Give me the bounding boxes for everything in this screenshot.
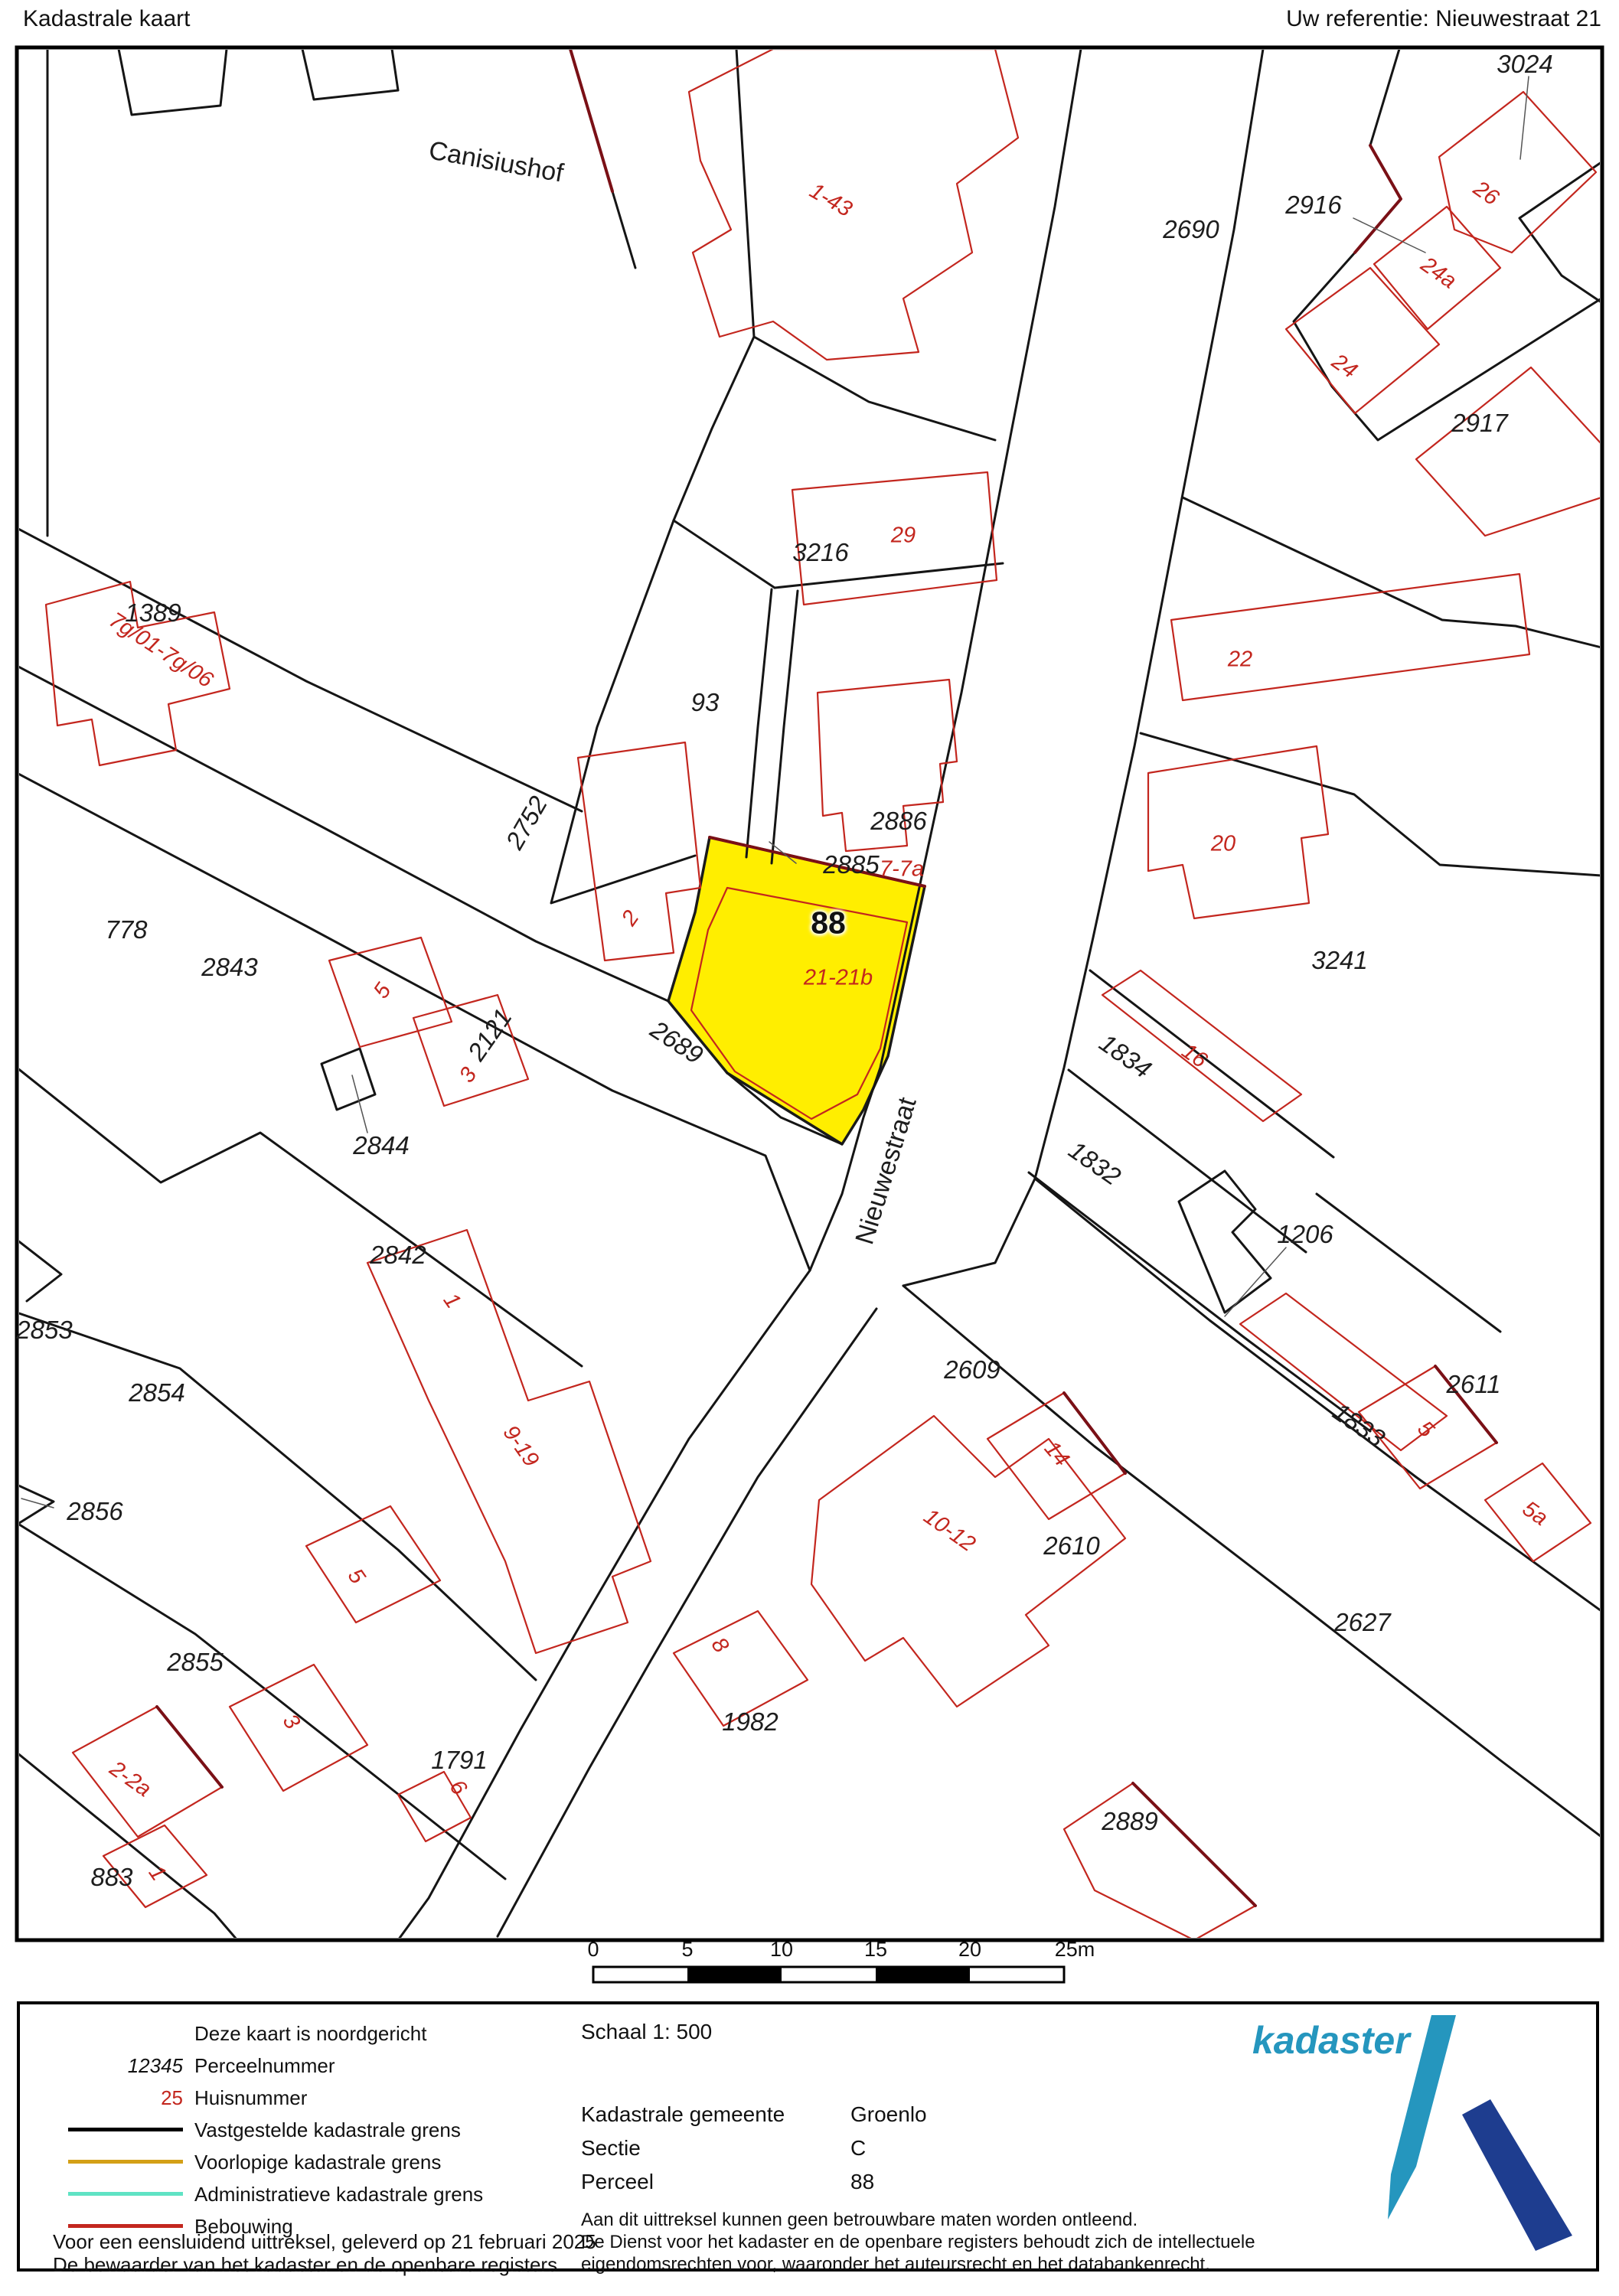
parcel-number-label: 2609 (944, 1355, 1000, 1384)
parcel-number-label: 93 (691, 688, 720, 717)
scale-bar (593, 1967, 1064, 1982)
cadastral-map (0, 0, 1619, 2296)
parcel-number-label: 778 (105, 915, 147, 944)
parcel-number-label: 2854 (129, 1378, 184, 1407)
parcel-number-label: 1206 (1277, 1220, 1333, 1249)
parcel-number-label: 2856 (67, 1497, 122, 1526)
parcel-number-label: 2844 (353, 1131, 409, 1160)
highlighted-parcel-number: 88 (811, 905, 846, 941)
parcel-number-label: 2885 (823, 850, 879, 879)
parcel-number-label: 2917 (1451, 409, 1507, 438)
parcel-number-label: 2853 (16, 1316, 72, 1345)
scale-tick-label: 25m (1055, 1938, 1095, 1962)
scale-tick-label: 15 (864, 1938, 887, 1962)
house-number-label: 7-7a (880, 857, 924, 882)
scale-tick-label: 5 (681, 1938, 693, 1962)
parcel-number-label: 2610 (1043, 1531, 1099, 1561)
parcel-number-label: 3216 (792, 538, 848, 567)
scale-tick-label: 0 (587, 1938, 599, 1962)
kadaster-logo-mark (20, 2004, 1602, 2268)
house-number-label: 22 (1228, 647, 1252, 673)
footer-panel: Deze kaart is noordgericht 12345Perceeln… (17, 2001, 1599, 2272)
parcel-number-label: 2611 (1447, 1370, 1501, 1399)
parcel-number-label: 2916 (1285, 191, 1341, 220)
kadastral-map-page: { "header": { "title": "Kadastrale kaart… (0, 0, 1619, 2296)
parcel-number-label: 2842 (370, 1241, 426, 1270)
parcel-number-label: 2855 (167, 1648, 223, 1677)
parcel-number-label: 2889 (1102, 1807, 1157, 1836)
parcel-number-label: 1982 (722, 1707, 778, 1737)
house-number-label: 20 (1211, 832, 1235, 857)
parcel-number-label: 3241 (1311, 946, 1367, 975)
parcel-number-label: 2843 (201, 953, 257, 982)
house-number-label: 21-21b (804, 966, 873, 991)
parcel-number-label: 2690 (1163, 215, 1219, 244)
parcel-number-label: 2886 (870, 807, 926, 836)
house-number-label: 29 (891, 523, 916, 549)
scale-tick-label: 10 (770, 1938, 793, 1962)
parcel-number-label: 883 (90, 1863, 132, 1892)
parcel-number-label: 1791 (431, 1746, 487, 1775)
scale-tick-label: 20 (958, 1938, 981, 1962)
parcel-number-label: 2627 (1334, 1608, 1390, 1637)
parcel-number-label: 3024 (1497, 50, 1552, 79)
